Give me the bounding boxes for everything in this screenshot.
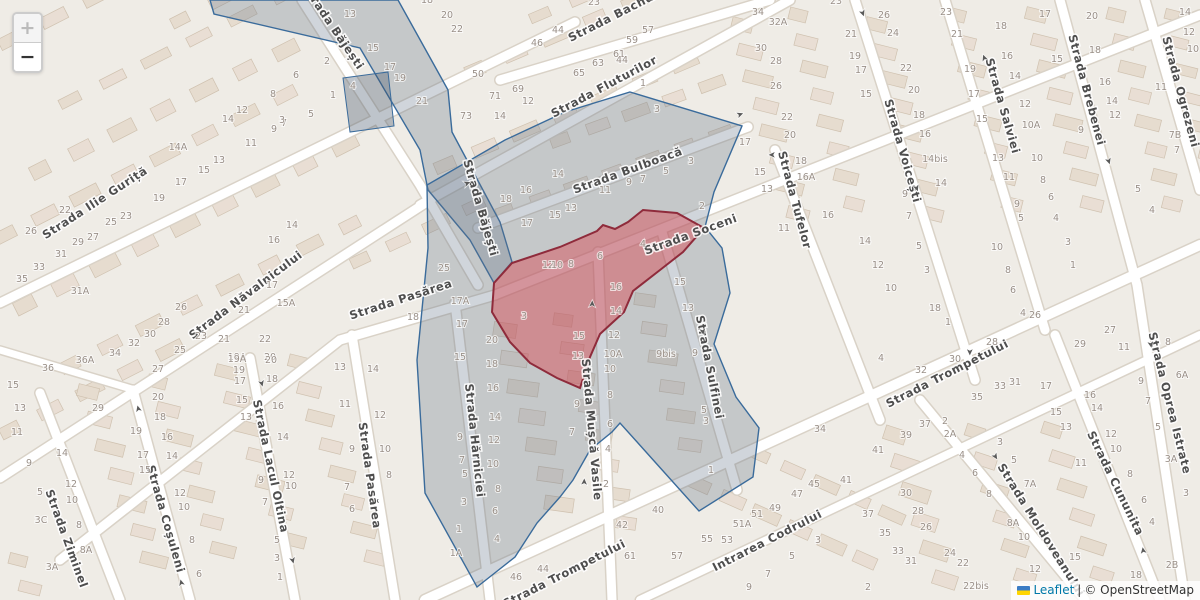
house-number: 9 (692, 348, 698, 359)
house-number: 17 (1039, 9, 1051, 20)
house-number: 8 (1040, 175, 1046, 186)
oneway-arrow-icon: ➤ (768, 149, 776, 159)
house-number: 6 (972, 468, 978, 479)
house-number: 23 (195, 331, 207, 342)
house-number: 17 (855, 65, 867, 76)
house-number: 5 (1155, 422, 1161, 433)
building (852, 550, 878, 570)
house-number: 71 (489, 91, 501, 102)
house-number: 1 (945, 317, 951, 328)
house-number: 28 (912, 506, 924, 517)
house-number: 28 (158, 317, 170, 328)
house-number: 20 (908, 85, 920, 96)
building (843, 196, 864, 212)
house-number: 6 (492, 506, 498, 517)
house-number: 4 (1149, 205, 1155, 216)
house-number: 26 (920, 522, 932, 533)
attribution-separator: | (1077, 583, 1081, 597)
house-number: 5 (1011, 455, 1017, 466)
building (931, 570, 958, 591)
house-number: 15 (367, 43, 379, 54)
house-number: 9 (258, 475, 264, 486)
house-number: 12 (872, 260, 884, 271)
house-number: 10 (66, 495, 78, 506)
house-number: 25 (438, 263, 450, 274)
house-number: 13 (240, 412, 252, 423)
house-number: 25 (105, 217, 117, 228)
zoom-control: + − (12, 12, 43, 73)
house-number: 51A (733, 519, 752, 530)
house-number: 15 (1069, 552, 1081, 563)
building (816, 114, 843, 132)
house-number: 46 (531, 38, 543, 49)
house-number: 33 (994, 381, 1006, 392)
house-number: 37 (919, 419, 931, 430)
house-number: 6 (1048, 192, 1054, 203)
house-number: 21 (951, 29, 963, 40)
house-number: 7B (1169, 130, 1182, 141)
house-number: 2 (865, 582, 871, 593)
house-number: 12 (1109, 110, 1121, 121)
house-number: 17 (234, 376, 246, 387)
house-number: 61 (624, 551, 636, 562)
house-number: 10 (379, 444, 391, 455)
house-number: 13 (1060, 422, 1072, 433)
house-number: 37 (862, 509, 874, 520)
ukraine-flag-icon (1017, 586, 1030, 595)
building (698, 74, 726, 93)
building (140, 47, 171, 70)
house-number: 12 (65, 479, 77, 490)
house-number: 12 (174, 488, 186, 499)
house-number: 10 (285, 481, 297, 492)
house-number: 21 (238, 305, 250, 316)
building (272, 38, 301, 62)
house-number: 34 (814, 424, 826, 435)
house-number: 12 (1019, 99, 1031, 110)
house-number: 1 (1070, 260, 1076, 271)
house-number: 1 (708, 465, 714, 476)
house-number: 19 (849, 51, 861, 62)
house-number: 6 (597, 251, 603, 262)
house-number: 44 (552, 25, 564, 36)
house-number: 8 (189, 535, 195, 546)
house-number: 65 (573, 68, 585, 79)
house-number: 4 (605, 444, 611, 455)
house-number: 3 (815, 535, 821, 546)
house-number: 11 (1003, 172, 1015, 183)
building (39, 7, 69, 30)
building (18, 580, 42, 596)
house-number: 16 (268, 235, 280, 246)
house-number: 7 (1145, 396, 1151, 407)
building (800, 60, 828, 78)
oneway-arrow-icon: ➤ (176, 577, 188, 587)
map-canvas[interactable]: Strada Ilie GurițăStrada NăvalniculuiStr… (0, 0, 1200, 600)
house-number: 10 (487, 459, 499, 470)
building (1069, 508, 1095, 527)
house-number: 8A (1007, 518, 1020, 529)
house-number: 14 (935, 178, 947, 189)
building (1145, 142, 1167, 158)
house-number: 3C (35, 515, 48, 526)
house-number: 16 (487, 383, 499, 394)
house-number: 2 (942, 416, 948, 427)
house-number: 7 (262, 497, 268, 508)
house-number: 12 (488, 435, 500, 446)
house-number: 21 (416, 96, 428, 107)
house-number: 13 (14, 403, 26, 414)
house-number: 32 (915, 365, 927, 376)
road (945, 0, 1045, 330)
house-number: 6 (1010, 285, 1016, 296)
house-number: 18 (421, 0, 433, 6)
building (186, 27, 213, 47)
house-number: 1 (330, 90, 336, 101)
building (200, 514, 223, 531)
house-number: 12 (374, 410, 386, 421)
zoom-in-button[interactable]: + (14, 14, 41, 42)
house-number: 9bis (656, 349, 676, 360)
building (833, 168, 859, 185)
house-number: 26 (25, 226, 37, 237)
house-number: 32 (128, 338, 140, 349)
house-number: 3 (1065, 237, 1071, 248)
house-number: 15 (1050, 407, 1062, 418)
house-number: 12 (236, 105, 248, 116)
oneway-arrow-icon: ➤ (964, 348, 974, 356)
house-number: 20 (152, 392, 164, 403)
house-number: 6A (1176, 370, 1189, 381)
building (1161, 196, 1182, 212)
house-number: 41 (840, 475, 852, 486)
house-number: 42 (616, 520, 628, 531)
house-number: 14 (859, 236, 871, 247)
house-number: 8 (1005, 265, 1011, 276)
house-number: 18 (486, 359, 498, 370)
house-number: 18 (795, 156, 807, 167)
house-number: 17 (1040, 381, 1052, 392)
house-number: 33 (892, 546, 904, 557)
house-number: 51 (751, 509, 763, 520)
house-number: 6 (1141, 495, 1147, 506)
house-number: 20 (265, 355, 277, 366)
house-number: 17 (739, 137, 751, 148)
zoom-out-button[interactable]: − (14, 42, 41, 71)
building (385, 232, 410, 252)
house-number: 14 (1009, 71, 1021, 82)
house-number: 26 (1029, 310, 1041, 321)
house-number: 3 (654, 104, 660, 115)
house-number: 14 (552, 169, 564, 180)
house-number: 7 (906, 211, 912, 222)
house-number: 28 (770, 56, 782, 67)
building (1151, 168, 1177, 185)
building (169, 11, 190, 29)
house-number: 14 (1106, 96, 1118, 107)
house-number: 50 (472, 69, 484, 80)
house-number: 2 (324, 56, 330, 67)
house-number: 2B (1166, 560, 1179, 571)
house-number: 6 (607, 419, 613, 430)
house-number: 25 (174, 345, 186, 356)
house-number: 16 (610, 282, 622, 293)
house-number: 14 (610, 306, 622, 317)
house-number: 14 (222, 114, 234, 125)
house-number: 8 (76, 520, 82, 531)
oneway-arrow-icon: ➤ (255, 379, 267, 389)
building (108, 467, 134, 484)
house-number: 8 (607, 390, 613, 401)
house-number: 16 (1001, 51, 1013, 62)
building (305, 409, 334, 427)
house-number: 16 (1084, 390, 1096, 401)
house-number: 5 (308, 109, 314, 120)
house-number: 15 (139, 465, 151, 476)
building (1047, 87, 1073, 104)
house-number: 44 (537, 564, 549, 575)
house-number: 7 (344, 482, 350, 493)
building (878, 505, 906, 526)
house-number: 14 (56, 448, 68, 459)
house-number: 10 (178, 502, 190, 513)
building (94, 439, 125, 458)
house-number: 16 (919, 129, 931, 140)
house-number: 29 (92, 403, 104, 414)
house-number: 5 (916, 241, 922, 252)
house-number: 7 (765, 569, 771, 580)
house-number: 15 (860, 89, 872, 100)
building (794, 34, 818, 51)
house-number: 69 (512, 84, 524, 95)
house-number: 13 (213, 155, 225, 166)
house-number: 36A (76, 355, 95, 366)
house-number: 4 (1020, 308, 1026, 319)
house-number: 18 (1089, 45, 1101, 56)
house-number: 7A (1024, 479, 1037, 490)
house-number: 5 (789, 551, 795, 562)
house-number: 16 (520, 185, 532, 196)
leaflet-link[interactable]: Leaflet (1033, 583, 1074, 597)
house-number: 13 (572, 351, 584, 362)
house-number: 35 (16, 274, 28, 285)
house-number: 29 (72, 237, 84, 248)
house-number: 17 (968, 89, 980, 100)
house-number: 4 (494, 534, 500, 545)
house-number: 13 (334, 362, 346, 373)
house-number: 8 (1127, 469, 1133, 480)
house-number: 2 (603, 479, 609, 490)
house-number: 8 (986, 489, 992, 500)
house-number: 3 (274, 553, 280, 564)
house-number: 46 (510, 572, 522, 583)
house-number: 63 (592, 58, 604, 69)
house-number: 22 (259, 334, 271, 345)
house-number: 21 (845, 29, 857, 40)
building (68, 139, 95, 162)
house-number: 9 (457, 432, 463, 443)
house-number: 19 (394, 73, 406, 84)
house-number: 2A (944, 429, 957, 440)
house-number: 18 (995, 21, 1007, 32)
house-number: 14 (166, 451, 178, 462)
house-number: 8 (386, 470, 392, 481)
house-number: 57 (671, 551, 683, 562)
oneway-arrow-icon: ➤ (588, 300, 598, 308)
house-number: 6 (293, 70, 299, 81)
oneway-arrow-icon: ➤ (286, 556, 298, 566)
house-number: 22 (451, 24, 463, 35)
house-number: 10 (885, 283, 897, 294)
house-number: 15A (277, 298, 296, 309)
house-number: 34 (752, 7, 764, 18)
house-number: 59 (626, 35, 638, 46)
building (99, 69, 127, 90)
house-number: 15 (976, 114, 988, 125)
house-number: 6 (349, 504, 355, 515)
house-number: 15 (198, 165, 210, 176)
house-number: 4 (1053, 213, 1059, 224)
house-number: 8 (495, 484, 501, 495)
building (1049, 450, 1076, 469)
house-number: 8 (1165, 337, 1171, 348)
house-number: 10A (604, 349, 623, 360)
house-number: 15 (1051, 54, 1063, 65)
house-number: 14 (277, 432, 289, 443)
house-number: 18 (266, 374, 278, 385)
house-number: 13 (992, 153, 1004, 164)
house-number: 11 (1118, 342, 1130, 353)
house-number: 11 (1075, 458, 1087, 469)
house-number: 12 (283, 470, 295, 481)
house-number: 12 (1105, 429, 1117, 440)
building (1106, 7, 1126, 23)
house-number: 55 (701, 534, 713, 545)
house-number: 17 (175, 177, 187, 188)
building (742, 70, 773, 89)
house-number: 19 (964, 64, 976, 75)
building (232, 59, 257, 81)
building (338, 215, 361, 235)
house-number: 22 (59, 205, 71, 216)
house-number: 14 (1091, 403, 1103, 414)
house-number: 1 (277, 572, 283, 583)
building (810, 88, 833, 105)
street-name-label: Strada Moldoveanului (995, 461, 1089, 599)
house-number: 29 (1074, 339, 1086, 350)
house-number: 9 (271, 124, 277, 135)
house-number: 17 (521, 218, 533, 229)
house-number: 9 (1014, 199, 1020, 210)
building (1030, 33, 1057, 51)
house-number: 1A (450, 548, 463, 559)
house-number: 16 (822, 210, 834, 221)
house-number: 18 (913, 110, 925, 121)
building (1134, 114, 1161, 132)
house-number: 13 (565, 203, 577, 214)
house-number: 1 (456, 524, 462, 535)
house-number: 2 (699, 201, 705, 212)
house-number: 22 (957, 558, 969, 569)
house-number: 9 (1078, 125, 1084, 136)
house-number: 12 (1029, 564, 1041, 575)
building (209, 541, 236, 559)
house-number: 11 (339, 399, 351, 410)
house-number: 19 (153, 193, 165, 204)
building (1069, 168, 1098, 186)
building (319, 438, 343, 455)
building (150, 99, 176, 121)
building (192, 124, 219, 146)
house-number: 4 (1149, 517, 1155, 528)
house-number: 14 (489, 412, 501, 423)
house-number: 9 (349, 444, 355, 455)
house-number: 16 (1099, 77, 1111, 88)
house-number: 3 (1183, 488, 1189, 499)
house-number: 24 (887, 28, 899, 39)
house-number: 26 (770, 81, 782, 92)
house-number: 10 (1031, 153, 1043, 164)
house-number: 26 (878, 10, 890, 21)
house-number: 40 (652, 505, 664, 516)
street-name-label: Strada Ilie Guriță (40, 163, 150, 241)
house-number: 7 (569, 427, 575, 438)
house-number: 5 (274, 535, 280, 546)
house-number: 28 (986, 337, 998, 348)
house-number: 10 (1187, 44, 1199, 55)
oneway-arrow-icon: ➤ (735, 109, 746, 121)
house-number: 73 (460, 111, 472, 122)
house-number: 31 (1009, 377, 1021, 388)
house-number: 23 (120, 211, 132, 222)
building (187, 485, 215, 503)
house-number: 9 (626, 177, 632, 188)
house-number: 19A (228, 354, 247, 365)
building (130, 523, 155, 540)
house-number: 31A (71, 286, 90, 297)
house-number: 8 (568, 259, 574, 270)
house-number: 27 (1104, 325, 1116, 336)
building (528, 6, 551, 23)
house-number: 18 (929, 303, 941, 314)
house-number: 8A (80, 545, 93, 556)
building (0, 225, 18, 246)
house-number: 16 (161, 432, 173, 443)
house-number: 41 (872, 445, 884, 456)
house-number: 57 (642, 25, 654, 36)
house-number: 12 (1183, 27, 1195, 38)
building (817, 534, 847, 556)
house-number: 9 (574, 399, 580, 410)
house-number: 19 (233, 365, 245, 376)
openstreetmap-link[interactable]: © OpenStreetMap (1084, 583, 1194, 597)
house-number: 12 (608, 330, 620, 341)
house-number: 4 (350, 81, 356, 92)
house-number: 9 (902, 189, 908, 200)
house-number: 15 (573, 331, 585, 342)
house-number: 35 (879, 528, 891, 539)
house-number: 33 (33, 262, 45, 273)
house-number: 17 (266, 280, 278, 291)
map-tiles: Strada Ilie GurițăStrada NăvalniculuiStr… (0, 0, 1200, 600)
house-number: 20 (441, 10, 453, 21)
house-number: 23 (940, 7, 952, 18)
house-number: 23 (588, 0, 600, 8)
house-number: 3A (46, 562, 59, 573)
house-number: 20 (784, 130, 796, 141)
house-number: 7 (1174, 145, 1180, 156)
house-number: 3 (279, 115, 285, 126)
